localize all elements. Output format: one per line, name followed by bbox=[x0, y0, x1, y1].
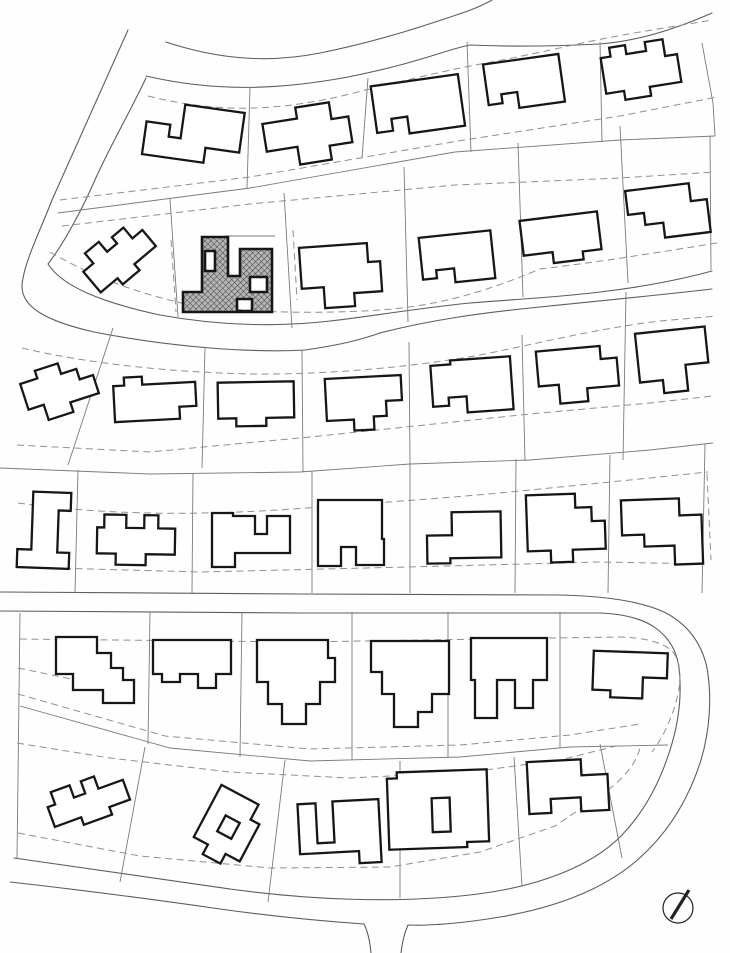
row3-side bbox=[202, 348, 205, 468]
setback-dashed-line bbox=[62, 172, 715, 226]
house-footprint bbox=[299, 242, 383, 309]
house-footprint bbox=[218, 381, 295, 426]
house-footprint bbox=[113, 374, 197, 422]
setback-dashed-line bbox=[707, 474, 711, 560]
house-footprint bbox=[621, 498, 703, 567]
road-line bbox=[166, 0, 492, 59]
house-footprint bbox=[189, 785, 268, 871]
house-footprint bbox=[536, 345, 620, 406]
house-footprint bbox=[483, 54, 565, 112]
row3-side bbox=[623, 292, 626, 460]
row4-side bbox=[75, 470, 78, 593]
house-footprint bbox=[318, 500, 384, 566]
house-footprint bbox=[430, 356, 514, 414]
house-footprint bbox=[153, 640, 231, 688]
row4-side bbox=[515, 459, 516, 593]
house-footprint bbox=[625, 181, 711, 241]
row2-side bbox=[284, 193, 292, 328]
house-footprint bbox=[56, 637, 134, 703]
house-footprint bbox=[519, 211, 602, 266]
house-footprint bbox=[371, 641, 449, 727]
house-footprint bbox=[43, 768, 133, 835]
site-plan-drawing bbox=[0, 0, 730, 953]
row4-side bbox=[608, 455, 610, 593]
setback-dashed-line bbox=[293, 230, 297, 300]
house-footprint bbox=[371, 74, 465, 138]
west-block-edge bbox=[17, 613, 20, 858]
house-footprint bbox=[387, 769, 490, 849]
setback-dashed-line bbox=[50, 243, 717, 312]
house-footprint bbox=[142, 100, 245, 168]
setback-lines-layer bbox=[17, 20, 717, 868]
row2-side bbox=[404, 167, 408, 322]
house-footprint bbox=[527, 758, 610, 814]
house-footprint bbox=[471, 638, 547, 718]
row1-side bbox=[247, 87, 250, 188]
house-footprint bbox=[599, 37, 683, 102]
row5-row6-rear-lot-line bbox=[20, 706, 668, 761]
row3-side bbox=[409, 342, 410, 464]
house-footprint bbox=[97, 514, 176, 565]
house-footprint bbox=[261, 100, 355, 170]
house-footprint bbox=[592, 651, 668, 700]
row3-row4-rear-lot-line bbox=[0, 443, 713, 474]
row6-side bbox=[268, 760, 285, 902]
row6-side bbox=[514, 757, 522, 886]
highlighted-house-group bbox=[183, 237, 272, 312]
house-footprint bbox=[75, 215, 161, 298]
road-line bbox=[10, 882, 371, 953]
house-footprint bbox=[212, 513, 290, 567]
house-footprint bbox=[419, 230, 496, 285]
house-footprint bbox=[17, 491, 72, 569]
house-footprint bbox=[257, 640, 335, 724]
north-arrow-needle bbox=[671, 890, 689, 919]
house-footprint bbox=[18, 354, 102, 425]
row2-side bbox=[710, 136, 711, 270]
house-footprint bbox=[427, 511, 502, 563]
house-footprint bbox=[297, 799, 381, 866]
row4-side bbox=[192, 473, 193, 593]
house-footprint bbox=[526, 493, 606, 564]
row3-side bbox=[522, 335, 525, 461]
row3-side bbox=[302, 350, 303, 472]
highlighted-house-footprint bbox=[183, 237, 272, 312]
row5-side bbox=[240, 612, 242, 757]
row6-side bbox=[120, 747, 145, 882]
row2-side bbox=[170, 199, 178, 317]
site-plan-page bbox=[0, 0, 730, 953]
north-arrow-group bbox=[663, 890, 693, 923]
row5-side bbox=[148, 612, 150, 744]
house-footprint bbox=[325, 375, 404, 432]
row1-side bbox=[702, 43, 715, 136]
house-footprint bbox=[635, 327, 711, 396]
row1-side bbox=[467, 42, 471, 152]
